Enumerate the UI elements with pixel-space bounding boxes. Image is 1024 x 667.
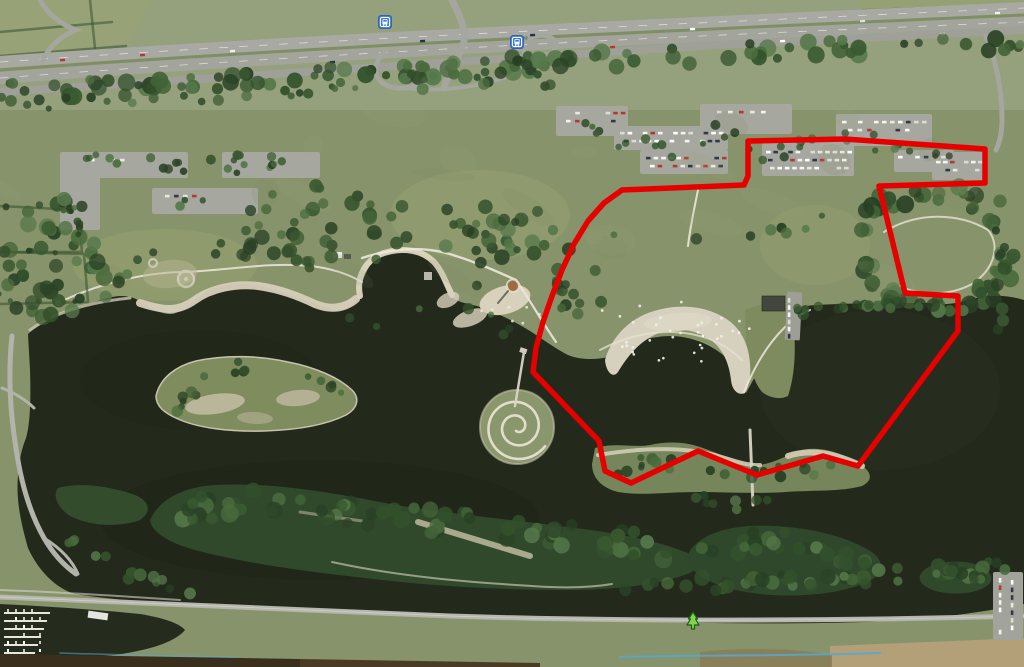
bus-stop-icon[interactable]	[511, 36, 524, 49]
map-canvas[interactable]	[0, 0, 1024, 667]
bus-stop-icon[interactable]	[379, 16, 392, 29]
map-viewport[interactable]: satellite	[0, 0, 1024, 667]
